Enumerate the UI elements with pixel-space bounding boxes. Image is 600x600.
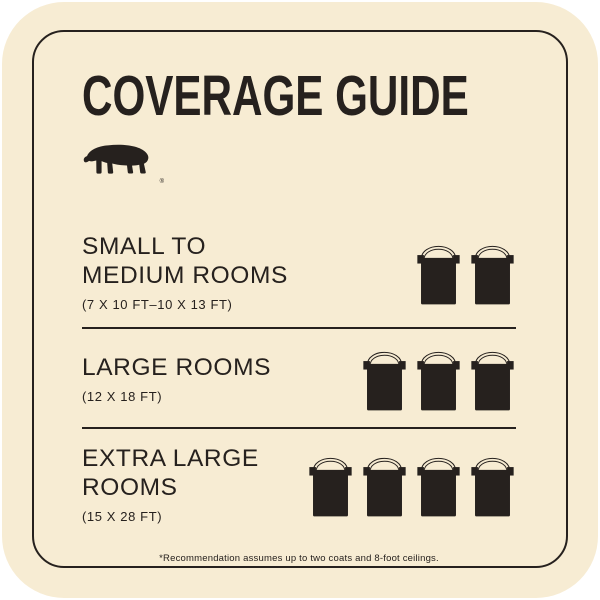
row-label: EXTRA LARGE ROOMS (15 X 28 FT) [82,444,259,524]
room-size-line: LARGE ROOMS [82,353,271,382]
paint-can-icon [469,343,516,413]
row-small-to-medium: SMALL TO MEDIUM ROOMS (7 X 10 FT–10 X 13… [82,217,516,329]
paint-can-icon [415,343,462,413]
paint-can-icon [415,237,462,307]
registered-trademark: ® [160,179,164,185]
paint-can-icon [469,449,516,519]
row-large: LARGE ROOMS (12 X 18 FT) [82,329,516,429]
paint-can-group [415,237,516,307]
room-dimensions: (15 X 28 FT) [82,509,259,524]
row-label: SMALL TO MEDIUM ROOMS (7 X 10 FT–10 X 13… [82,232,288,312]
paint-can-group [307,449,516,519]
bear-icon [82,141,154,185]
footnote: *Recommendation assumes up to two coats … [82,553,516,564]
page-title: COVERAGE GUIDE [82,68,403,125]
room-size-line: EXTRA LARGE [82,444,259,473]
paint-can-icon [469,237,516,307]
paint-can-icon [307,449,354,519]
room-size-line: MEDIUM ROOMS [82,261,288,290]
room-size-line: SMALL TO [82,232,288,261]
row-extra-large: EXTRA LARGE ROOMS (15 X 28 FT) [82,429,516,539]
room-dimensions: (12 X 18 FT) [82,389,271,404]
paint-can-icon [415,449,462,519]
card-content: COVERAGE GUIDE ® SMALL TO MEDIUM ROOMS (… [82,68,516,562]
row-label: LARGE ROOMS (12 X 18 FT) [82,353,271,404]
paint-can-icon [361,449,408,519]
cream-card: COVERAGE GUIDE ® SMALL TO MEDIUM ROOMS (… [2,2,598,598]
room-size-line: ROOMS [82,473,259,502]
paint-can-icon [361,343,408,413]
brand-logo: ® [82,141,162,187]
coverage-guide-infographic: COVERAGE GUIDE ® SMALL TO MEDIUM ROOMS (… [0,0,600,600]
room-dimensions: (7 X 10 FT–10 X 13 FT) [82,297,288,312]
paint-can-group [361,343,516,413]
coverage-rows: SMALL TO MEDIUM ROOMS (7 X 10 FT–10 X 13… [82,217,516,539]
